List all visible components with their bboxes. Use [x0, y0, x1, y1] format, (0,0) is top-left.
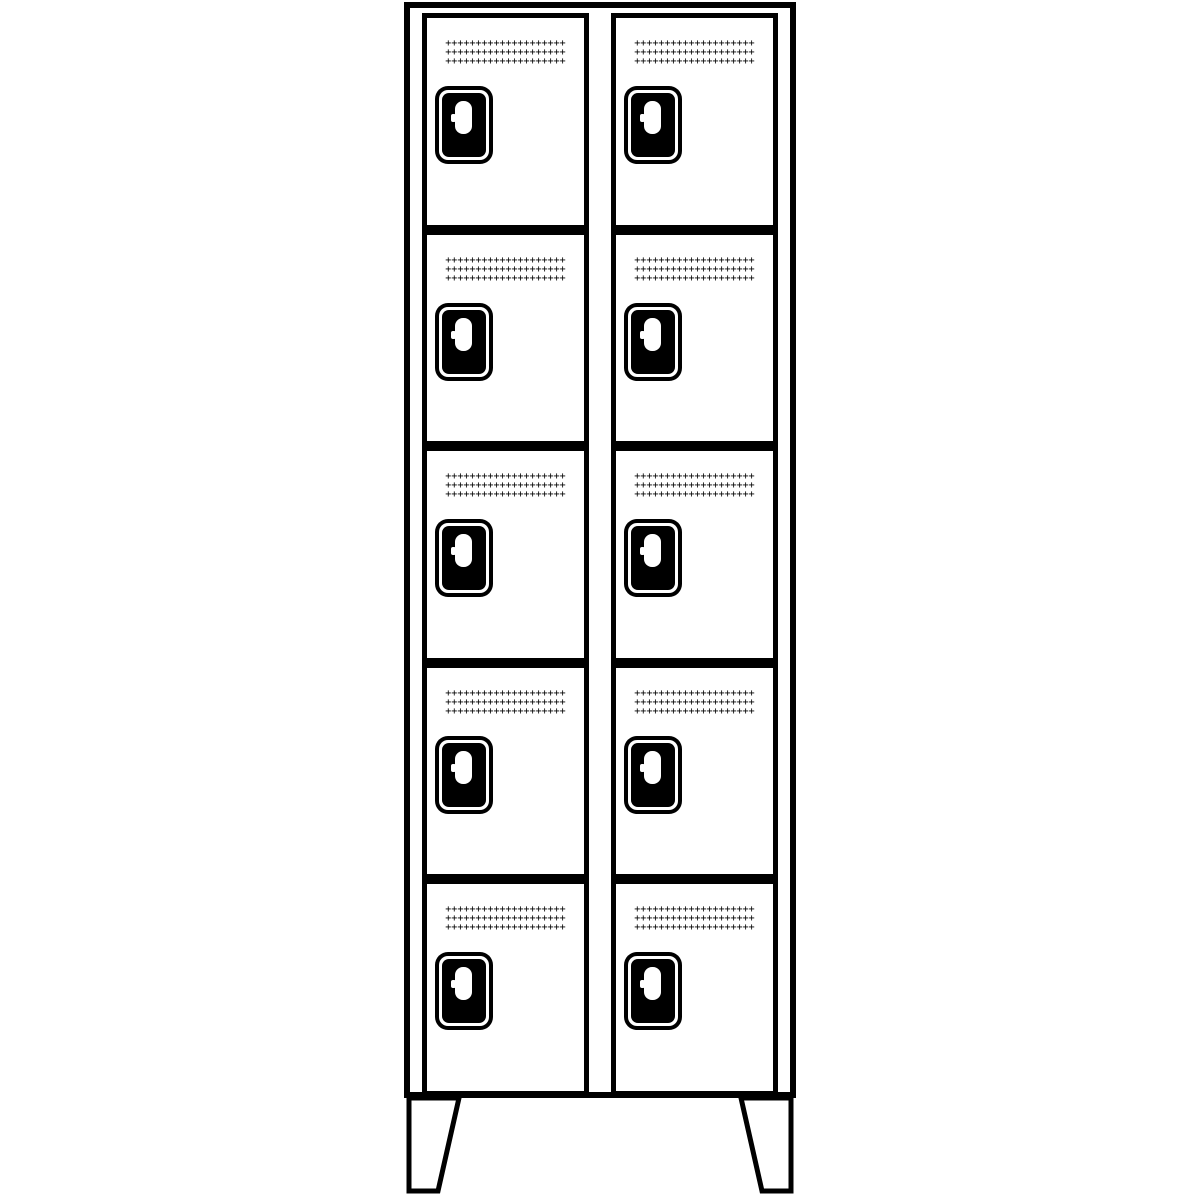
vent-grille-icon: ++++++++++++++++++++ +++++++++++++++++++… [634, 689, 754, 716]
cabinet-foot-right [736, 1096, 796, 1196]
locker-door-c2-r3[interactable]: ++++++++++++++++++++ +++++++++++++++++++… [611, 446, 778, 663]
keyhole-icon [644, 967, 661, 1000]
locker-door-c2-r5[interactable]: ++++++++++++++++++++ +++++++++++++++++++… [611, 879, 778, 1096]
vent-grille-icon: ++++++++++++++++++++ +++++++++++++++++++… [445, 39, 565, 66]
lock-plate[interactable] [624, 303, 682, 381]
keyhole-icon [644, 534, 661, 567]
lock-plate[interactable] [624, 736, 682, 814]
keyhole-icon [455, 101, 472, 134]
vent-grille-icon: ++++++++++++++++++++ +++++++++++++++++++… [634, 905, 754, 932]
keyhole-icon [455, 751, 472, 784]
keyhole-icon [455, 318, 472, 351]
locker-door-c2-r2[interactable]: ++++++++++++++++++++ +++++++++++++++++++… [611, 230, 778, 446]
locker-door-c1-r5[interactable]: ++++++++++++++++++++ +++++++++++++++++++… [422, 879, 589, 1096]
vent-grille-icon: ++++++++++++++++++++ +++++++++++++++++++… [634, 256, 754, 283]
vent-grille-icon: ++++++++++++++++++++ +++++++++++++++++++… [445, 472, 565, 499]
vent-grille-icon: ++++++++++++++++++++ +++++++++++++++++++… [634, 472, 754, 499]
keyhole-icon [644, 101, 661, 134]
locker-door-c1-r1[interactable]: ++++++++++++++++++++ +++++++++++++++++++… [422, 13, 589, 230]
locker-door-c1-r3[interactable]: ++++++++++++++++++++ +++++++++++++++++++… [422, 446, 589, 663]
locker-door-c1-r4[interactable]: ++++++++++++++++++++ +++++++++++++++++++… [422, 663, 589, 879]
cabinet-foot-left [404, 1096, 464, 1196]
vent-grille-icon: ++++++++++++++++++++ +++++++++++++++++++… [445, 905, 565, 932]
lock-plate[interactable] [624, 952, 682, 1030]
keyhole-icon [455, 967, 472, 1000]
lock-plate[interactable] [435, 86, 493, 164]
lock-plate[interactable] [435, 303, 493, 381]
keyhole-icon [644, 751, 661, 784]
keyhole-icon [455, 534, 472, 567]
lock-plate[interactable] [435, 736, 493, 814]
vent-grille-icon: ++++++++++++++++++++ +++++++++++++++++++… [445, 689, 565, 716]
product-drawing-canvas: ++++++++++++++++++++ +++++++++++++++++++… [0, 0, 1200, 1200]
locker-door-c2-r4[interactable]: ++++++++++++++++++++ +++++++++++++++++++… [611, 663, 778, 879]
locker-door-c1-r2[interactable]: ++++++++++++++++++++ +++++++++++++++++++… [422, 230, 589, 446]
locker-door-c2-r1[interactable]: ++++++++++++++++++++ +++++++++++++++++++… [611, 13, 778, 230]
vent-grille-icon: ++++++++++++++++++++ +++++++++++++++++++… [445, 256, 565, 283]
locker-cabinet: ++++++++++++++++++++ +++++++++++++++++++… [0, 0, 1200, 1200]
lock-plate[interactable] [624, 86, 682, 164]
vent-grille-icon: ++++++++++++++++++++ +++++++++++++++++++… [634, 39, 754, 66]
lock-plate[interactable] [435, 519, 493, 597]
lock-plate[interactable] [435, 952, 493, 1030]
keyhole-icon [644, 318, 661, 351]
lock-plate[interactable] [624, 519, 682, 597]
